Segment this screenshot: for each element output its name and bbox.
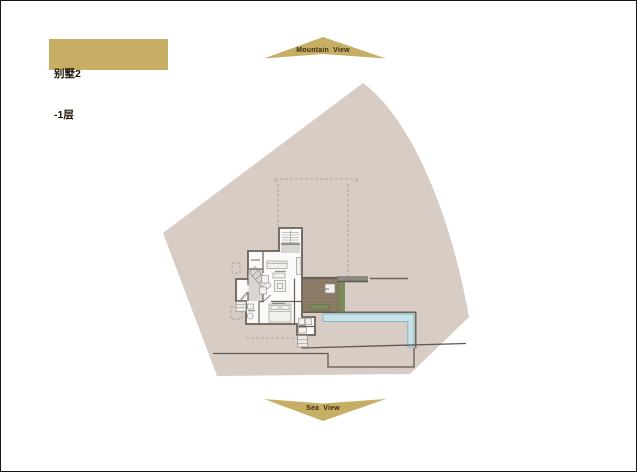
pillow-right [281,306,289,310]
pool-side-steps [298,336,308,348]
planter-horizontal [310,305,329,311]
room-label-mark [275,271,286,272]
room-label-mark [299,325,306,326]
room-label-mark [248,310,255,311]
mountain-view-label: Mountain View [296,47,350,54]
sea-view-label: Sea View [306,405,340,412]
entry-steps-block [236,302,246,312]
utility-fixture-1 [299,319,305,325]
site-plan-drawing: Mountain View Sea View [1,1,637,472]
side-chair [260,287,267,294]
room-label-mark [272,303,285,304]
room-label-mark [251,260,260,261]
coffee-table [273,273,285,278]
utility-fixture-2 [306,319,312,325]
retaining-wall-band [337,276,368,282]
pillow-left [271,306,279,310]
pool-steps-block [298,336,308,348]
sea-view-marker: Sea View [264,399,386,421]
room-label-mark [316,289,329,290]
mountain-view-marker: Mountain View [264,37,386,59]
page: 别墅2 -1层 Mountain View Sea View [0,0,637,472]
dining-table-center [278,284,283,289]
armchair [262,276,269,284]
entry-steps [236,302,246,312]
bathroom-sink [248,304,254,309]
planter-vertical [338,280,345,311]
media-console [297,258,302,275]
stair-landing [281,244,300,253]
site-boundary [163,83,469,376]
toilet [248,313,254,319]
sofa [267,261,287,269]
utility-fixture-3 [299,328,307,334]
